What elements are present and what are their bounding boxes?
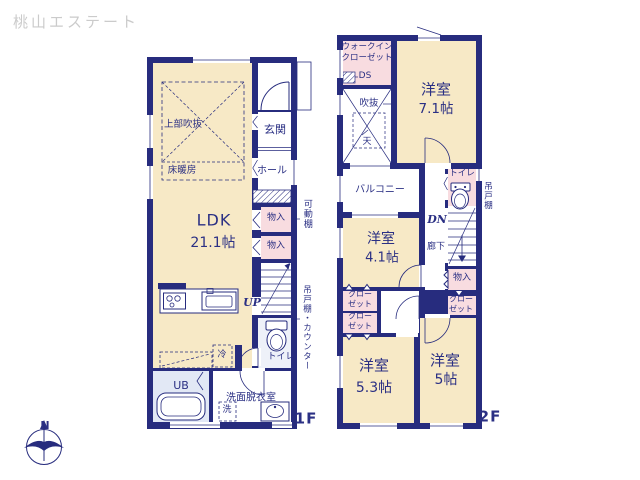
toilet-icon-1f — [266, 321, 287, 351]
bathtub-icon — [157, 393, 205, 420]
compass-icon — [24, 420, 64, 465]
stove-icon — [164, 293, 186, 309]
shoe-cabinet-hatch — [253, 190, 291, 203]
floorplan-drawing — [0, 0, 640, 480]
company-logo: 桃山エステート — [13, 11, 139, 32]
floor1-plan — [147, 57, 311, 429]
floorplan-page: 桃山エステート LDK 21.1帖 上部吹抜 床暖房 玄関 ホール 物入 物入 … — [0, 0, 640, 480]
sink-icon — [202, 289, 236, 311]
floor2-plan — [337, 27, 482, 429]
washbasin-icon — [261, 402, 289, 421]
toilet-icon-2f — [451, 183, 470, 209]
porch-step — [297, 62, 311, 110]
